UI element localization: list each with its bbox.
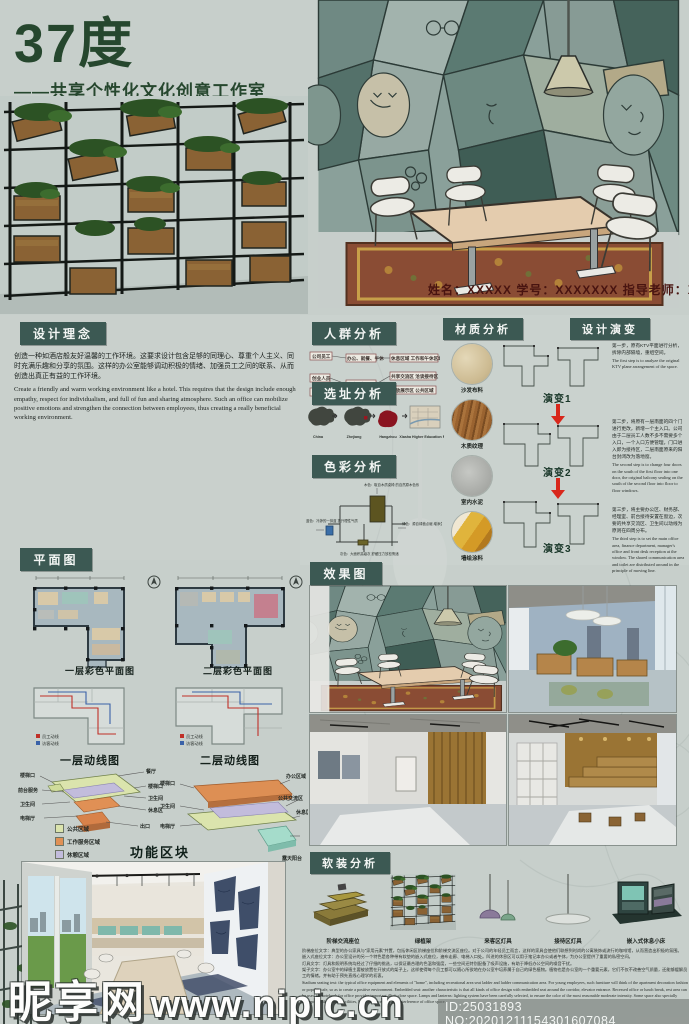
section-header-material: 材质分析 (443, 318, 523, 340)
plant-rack-render (0, 96, 308, 314)
crowd-box: 共享交流区 洽谈接待区 (391, 373, 439, 380)
material-swatch-cement (452, 456, 492, 496)
stepped-seating-icon (308, 874, 378, 930)
crowd-box: 开放展示区 公共区域 (391, 387, 434, 394)
function-blocks-title: 功能区块 (100, 842, 220, 861)
floor-plan-caption-2: 二层彩色平面图 (178, 664, 298, 677)
function-label: 出口 (140, 823, 150, 830)
evolution-step-en: The second step is to change four doors … (612, 462, 686, 494)
function-label: 餐厅 (145, 768, 156, 775)
material-item: 沙发布料 (447, 344, 497, 394)
crowd-box: 办公、就餐、午休 (347, 355, 384, 362)
function-label: 露天阳台 (282, 855, 302, 862)
color-note: 灰色：大面积高级灰 舒缓压力放松情绪 (340, 551, 399, 556)
function-legend: 公共区域 工作服务区域 休憩区域 (55, 824, 100, 863)
credits-line: 姓名：XXXXX 学号：XXXXXXX 指导老师：XXX (428, 281, 689, 298)
material-item: 墙绘涂料 (447, 512, 497, 562)
soft-items-row: 阶梯交流座位 绿植架 来客区灯具 接待区灯具 (306, 874, 686, 945)
floor-plan-caption-1: 一层彩色平面图 (40, 664, 160, 677)
material-label: 室内水泥 (447, 498, 497, 506)
evolution-step-2: 第二步，将原有一层南面的四个门进行更改，新增一个主入口。公司由于二层员工人数不多… (612, 418, 686, 494)
circulation-legend-visitor: 访客动线 (42, 740, 60, 747)
section-header-floorplan: 平面图 (20, 548, 92, 571)
color-note: 绿色：源自绿植点缀 增添生机活力 (402, 521, 442, 526)
function-label: 楼梯口 (160, 780, 175, 787)
evolution-tag-3: 演变3 (543, 540, 572, 555)
evolution-step-zh: 第一步，原有KTV平面进行分析，拆除内部隔墙，重组空间。 (612, 342, 686, 356)
section-header-renderings: 效果图 (310, 562, 382, 585)
plant-rack-icon (390, 874, 456, 930)
evolution-tag-1: 演变1 (543, 390, 572, 405)
floor-plan-1 (28, 572, 164, 668)
material-item: 室内水泥 (447, 456, 497, 506)
section-header-soft: 软装分析 (310, 852, 390, 874)
soft-item-stepped-seating: 阶梯交流座位 (306, 874, 380, 945)
circulation-legend-visitor: 访客动线 (186, 740, 204, 747)
render-3-lobby (310, 715, 506, 845)
section-header-crowd: 人群分析 (312, 322, 396, 345)
evolution-step-zh: 第三步，将主要办公区、财务部、经理室、前台接待安置在窗边，次要的共享交流区、卫生… (612, 506, 686, 534)
legend-swatch-work (55, 837, 64, 846)
material-item: 木质纹理 (447, 400, 497, 450)
watermark-url: www.nipic.cn (150, 984, 403, 1024)
reception-lamp-icon (540, 874, 596, 930)
poster-title-block: 37度 ——共享个性化文化创意工作室 (14, 16, 324, 102)
evolution-step-zh: 第二步，将原有一层南面的四个门进行更改，新增一个主入口。公司由于二层员工人数不多… (612, 418, 686, 460)
floor-plan-2 (168, 572, 304, 668)
legend-row: 公共区域 (55, 824, 100, 833)
evolution-plan-sketches (500, 340, 608, 564)
crowd-box: 公司员工 (312, 353, 331, 360)
site-map-label: China (313, 435, 324, 439)
evolution-step-en: The first step is to analyze the origina… (612, 358, 686, 371)
render-2-office-area (509, 586, 676, 712)
watermark-site-name: 昵享网 (8, 978, 146, 1024)
evolution-step-3: 第三步，将主要办公区、财务部、经理室、前台接待安置在窗边，次要的共享交流区、卫生… (612, 506, 686, 574)
section-header-design-concept: 设计理念 (20, 322, 106, 345)
soft-item-reception-lamp: 接待区灯具 (536, 874, 600, 945)
site-map-label: Xiasha Higher Education Park (399, 435, 444, 439)
design-concept-en: Create a friendly and warm working envir… (14, 385, 298, 422)
legend-row: 工作服务区域 (55, 837, 100, 846)
page-title: 37度 (14, 16, 324, 73)
material-swatch-fabric (452, 344, 492, 384)
material-swatch-paint (452, 512, 492, 552)
function-label: 办公区域 (286, 773, 306, 780)
evolution-arrow-1-icon (551, 404, 565, 426)
design-concept-text: 创造一种如酒店般友好温馨的工作环境。这要求设计包含足够的同理心、尊重个人主义、同… (14, 352, 298, 422)
circulation-legend-staff: 员工动线 (186, 733, 204, 740)
section-header-color: 色彩分析 (312, 455, 396, 478)
function-label: 电梯厅 (20, 815, 35, 822)
circulation-legend-staff: 员工动线 (42, 733, 60, 740)
color-note: 木色：取自木质桌椅 的自然原木色系 (364, 482, 420, 487)
soft-item-guest-lamp: 来客区灯具 (466, 874, 530, 945)
color-note: 蓝色：冷静的一抹蓝 提升理性气质 (306, 518, 358, 523)
function-label: 前台服务 (18, 787, 39, 794)
evolution-arrow-2-icon (551, 478, 565, 500)
color-analysis-diagram: 木色：取自木质桌椅 的自然原木色系 绿色：源自绿植点缀 增添生机活力 蓝色：冷静… (306, 480, 442, 558)
poster-root: 37度 ——共享个性化文化创意工作室 (0, 0, 689, 1024)
circulation-plan-1: 员工动线 访客动线 (28, 680, 164, 750)
function-label: 卫生间 (20, 801, 35, 808)
embedded-bed-icon (608, 874, 684, 930)
legend-row: 休憩区域 (55, 850, 100, 859)
circulation-caption-2: 二层动线图 (180, 752, 280, 768)
evolution-step-en: The third step is to set the main office… (612, 536, 686, 574)
render-4-stepped-hall (509, 715, 676, 845)
watermark: 昵享网 www.nipic.cn (8, 966, 404, 1024)
material-label: 木质纹理 (447, 442, 497, 450)
guest-area-lamp-icon (470, 874, 526, 930)
function-label: 公共交流区 (278, 795, 303, 802)
image-id-badge: ID:25031893 NO:20201211154301607084 (438, 999, 689, 1024)
evolution-tag-2: 演变2 (543, 464, 572, 479)
soft-item-plant-rack: 绿植架 (386, 874, 460, 945)
material-swatch-wood (452, 400, 492, 440)
legend-swatch-public (55, 824, 64, 833)
function-label: 楼梯口 (20, 772, 35, 779)
material-label: 墙绘涂料 (447, 554, 497, 562)
function-label: 休息区 (295, 809, 308, 816)
circulation-plan-2: 员工动线 访客动线 (168, 680, 304, 750)
function-label: 电梯厅 (160, 823, 175, 830)
soft-item-rest-bed: 嵌入式休息小床 (606, 874, 686, 945)
material-label: 沙发布料 (447, 386, 497, 394)
function-label: 卫生间 (160, 803, 175, 810)
crowd-box: 创业人员 (311, 375, 331, 382)
render-1-mural-dining (310, 586, 506, 712)
site-map-label: Hangzhou (379, 435, 396, 439)
material-list: 沙发布料 木质纹理 室内水泥 墙绘涂料 (447, 344, 497, 562)
site-map-label: Zhejiang (347, 435, 362, 439)
site-analysis-maps: China Zhejiang Hangzhou Xiasha Higher Ed… (304, 402, 444, 446)
design-concept-zh: 创造一种如酒店般友好温馨的工作环境。这要求设计包含足够的同理心、尊重个人主义、同… (14, 352, 298, 382)
evolution-step-1: 第一步，原有KTV平面进行分析，拆除内部隔墙，重组空间。 The first s… (612, 342, 686, 371)
legend-swatch-rest (55, 850, 64, 859)
soft-desc-zh-2: 嵌入式座位文字：办公室设计的另一个特色是各种带有软垫的嵌入式座位，遍布走廊、电梯… (302, 954, 688, 960)
hero-render (308, 0, 689, 308)
section-header-evolution: 设计演变 (570, 318, 650, 340)
crowd-box: 休息区域 工作和午休区域 (390, 355, 440, 362)
